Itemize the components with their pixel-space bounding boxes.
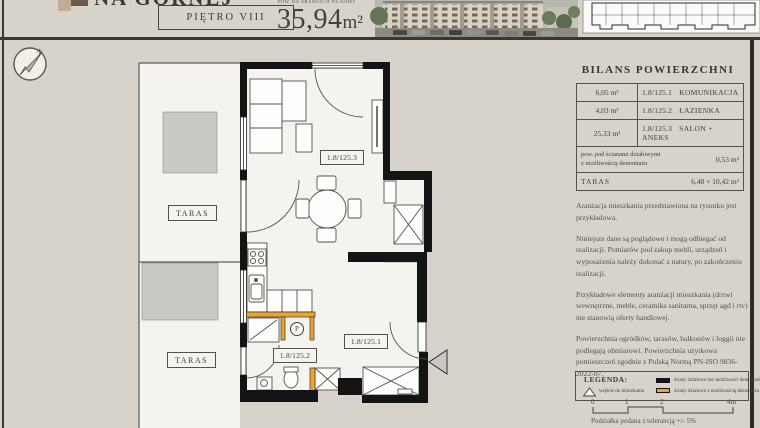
row-area: 25,33 m² (577, 120, 638, 147)
building-photo (370, 0, 580, 37)
room-label-salon: 1.8/125.3 (320, 150, 364, 165)
row-name: KOMUNIKACJA (679, 88, 738, 97)
row-area: 6,05 m² (577, 84, 638, 102)
header-divider (0, 37, 760, 40)
table-row: 25,33 m² 1.8/125.3SALON + ANEKS (577, 120, 744, 147)
note-paragraph: Niniejsze dane są poglądowe i mogą odbie… (576, 233, 748, 280)
taras-value: 6,48 + 10,42 m² (691, 177, 739, 186)
legend-entrance-label: wejście do mieszkania (599, 389, 644, 394)
table-row-taras: TARAS 6,48 + 10,42 m² (577, 173, 744, 191)
left-border (2, 0, 4, 428)
note-paragraph: Aranżacja mieszkania przedstawiona na ry… (576, 200, 748, 224)
table-row-partitions: pow. pod ścianami działowymi z możliwośc… (577, 147, 744, 173)
room-label-taras-upper: TARAS (168, 205, 217, 221)
legend-removable-wall-label: ściany działowe z możliwością demontażu (674, 389, 759, 394)
partition-value: 0,53 m² (716, 155, 739, 164)
disclaimer-notes: Aranżacja mieszkania przedstawiona na ry… (576, 200, 748, 389)
scale-bar (593, 407, 733, 413)
table-row: 6,05 m² 1.8/125.1KOMUNIKACJA (577, 84, 744, 102)
row-code: 1.8/125.1 (642, 88, 672, 97)
room-label-bathroom: 1.8/125.2 (273, 348, 317, 363)
floorplan-sheet: NA GÓRNEJ PIĘTRO VIII POW. DO ARANŻACJI … (0, 0, 760, 428)
row-code: 1.8/125.3 (642, 124, 672, 133)
legend-title: LEGENDA: (584, 375, 628, 384)
balance-title: BILANS POWIERZCHNI (566, 64, 750, 76)
table-row: 4,03 m² 1.8/125.2ŁAZIENKA (577, 102, 744, 120)
area-balance-table: 6,05 m² 1.8/125.1KOMUNIKACJA 4,03 m² 1.8… (576, 83, 744, 191)
room-label-taras-lower: TARAS (167, 352, 216, 368)
area-value: 35,94 (277, 4, 343, 35)
washer-symbol: P (290, 322, 304, 336)
scale-tolerance-note: Podziałka podana z tolerancją +/- 5% (591, 417, 696, 425)
row-area: 4,03 m² (577, 102, 638, 120)
fixed-wall-swatch (656, 378, 670, 383)
logo-icon (58, 0, 92, 12)
row-name: ŁAZIENKA (679, 106, 720, 115)
taras-label: TARAS (581, 177, 610, 186)
floor-badge: PIĘTRO VIII (158, 5, 294, 30)
keyplan-thumbnail (583, 0, 760, 33)
legend: LEGENDA: wejście do mieszkania ściany dz… (575, 371, 749, 401)
row-code: 1.8/125.2 (642, 106, 672, 115)
removable-wall-swatch (656, 388, 670, 393)
entrance-legend-icon (583, 387, 596, 397)
entrance-marker-icon (429, 350, 447, 374)
area-unit: m² (343, 12, 363, 33)
legend-fixed-wall-label: ściany działowe bez możliwości demontażu (674, 378, 760, 383)
note-paragraph: Przykładowe elementy aranżacji mieszkani… (576, 289, 748, 324)
partition-label-line2: z możliwością demontażu (581, 160, 660, 169)
partition-label-line1: pow. pod ścianami działowymi (581, 151, 660, 160)
total-area: 35,94m² (277, 4, 363, 36)
floor-label: PIĘTRO VIII (186, 12, 265, 23)
terraces (139, 63, 240, 428)
room-label-hall: 1.8/125.1 (344, 334, 388, 349)
right-border (750, 40, 754, 428)
